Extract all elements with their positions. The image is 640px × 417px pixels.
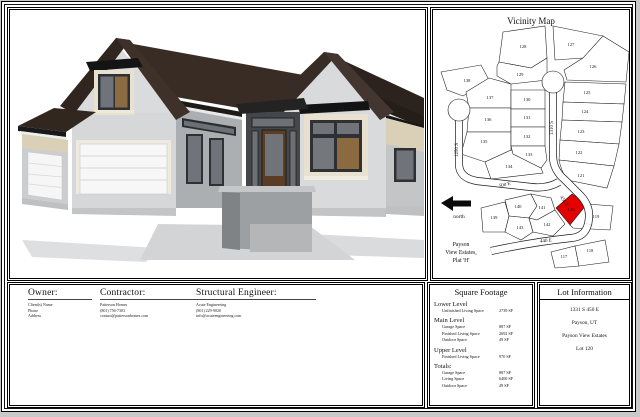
street-label: 1250 S <box>455 143 460 157</box>
sqft-row-label: Finished Living Space <box>442 354 499 360</box>
lot-number-129: 129 <box>517 72 525 77</box>
lot-number-143: 143 <box>517 225 525 230</box>
lot-number-125: 125 <box>584 90 592 95</box>
lot-number-132: 132 <box>524 134 532 139</box>
lot-number-119: 119 <box>593 214 600 219</box>
square-footage-panel: Square Footage Lower LevelUnfinished Liv… <box>427 282 535 408</box>
lot-number-138: 138 <box>464 78 472 83</box>
owner-heading: Owner: <box>28 288 92 300</box>
lot-number-122: 122 <box>576 150 584 155</box>
lot-number-124: 124 <box>582 109 590 114</box>
house-rendering-panel <box>7 7 428 281</box>
lot-number-136: 136 <box>485 117 493 122</box>
svg-text:Payson: Payson <box>453 242 470 248</box>
lot-number-135: 135 <box>481 139 489 144</box>
owner-lines: Client(s) NamePhoneAddress <box>28 302 92 319</box>
sqft-row: Outdoor Space49 SF <box>434 337 530 343</box>
left-gable-window <box>94 70 134 115</box>
lot-number-117: 117 <box>561 254 568 259</box>
sqft-row-value: 49 SF <box>499 383 509 389</box>
lot-number-121: 121 <box>578 173 586 178</box>
lot-number-130: 130 <box>524 97 532 102</box>
sqft-row-label: Outdoor Space <box>442 383 499 389</box>
front-entry <box>236 98 308 192</box>
structural-engineer-column: Structural Engineer: Acute Engineering(8… <box>196 288 316 319</box>
north-arrow-icon <box>441 196 471 211</box>
lot-number-128: 128 <box>520 44 528 49</box>
lot-number-134: 134 <box>506 164 514 169</box>
lot-number-131: 131 <box>524 115 532 120</box>
porch-concrete <box>218 186 316 252</box>
svg-text:Plat 'H': Plat 'H' <box>453 258 470 264</box>
info-line: Address <box>28 313 92 319</box>
owner-column: Owner: Client(s) NamePhoneAddress <box>28 288 92 319</box>
sqft-row: Finished Living Space970 SF <box>434 354 530 360</box>
right-wing <box>384 114 424 216</box>
right-gable-window <box>304 114 368 180</box>
vicinity-map-panel: Vicinity Map <box>430 7 632 281</box>
sqft-row-label: Outdoor Space <box>442 337 499 343</box>
lot-info-line: Lot 120 <box>540 346 629 352</box>
lot-number-142: 142 <box>544 222 552 227</box>
north-indicator: north <box>441 196 471 220</box>
lot-number-118: 118 <box>587 248 594 253</box>
lot-info-line: Payson View Estates <box>540 333 629 339</box>
lot-information-panel: Lot Information 1331 S 450 EPayson, UTPa… <box>537 282 632 408</box>
lot-information-title: Lot Information <box>540 287 629 300</box>
double-garage-door <box>76 140 171 194</box>
sqft-row: Unfinished Living Space2739 SF <box>434 308 530 314</box>
lot-number-139: 139 <box>491 215 499 220</box>
sqft-section-name: Upper Level <box>434 347 530 354</box>
sqft-section-name: Main Level <box>434 317 530 324</box>
lot-information-lines: 1331 S 450 EPayson, UTPayson View Estate… <box>540 307 629 352</box>
north-label: north <box>453 214 465 220</box>
sqft-row: Outdoor Space49 SF <box>434 383 530 389</box>
plan-sheet: Vicinity Map <box>1 1 636 412</box>
lot-number-140: 140 <box>515 204 523 209</box>
sqft-row-label: Unfinished Living Space <box>442 308 499 314</box>
lot-number-126: 126 <box>590 64 598 69</box>
info-line: info@acuteengineering.com <box>196 313 316 319</box>
square-footage-table: Lower LevelUnfinished Living Space2739 S… <box>434 298 530 389</box>
lot-number-133: 133 <box>526 152 534 157</box>
structural-engineer-heading: Structural Engineer: <box>196 288 316 300</box>
project-info-panel: Owner: Client(s) NamePhoneAddress Contra… <box>7 282 425 408</box>
svg-text:View Estates,: View Estates, <box>445 250 477 256</box>
lot-number-141: 141 <box>539 205 547 210</box>
square-footage-title: Square Footage <box>430 287 532 297</box>
sqft-section-name: Lower Level <box>434 301 530 308</box>
lot-number-127: 127 <box>568 42 576 47</box>
lot-number-120: 120 <box>568 207 576 212</box>
lot-number-137: 137 <box>487 95 495 100</box>
cul-de-sac-1310s <box>542 71 564 93</box>
house-rendering <box>10 10 425 278</box>
sqft-section-name: Totals: <box>434 363 530 370</box>
lot-info-line: 1331 S 450 E <box>540 307 629 313</box>
single-garage-door <box>28 152 62 200</box>
vicinity-map: Vicinity Map <box>433 10 629 278</box>
cul-de-sac-1250s <box>448 99 470 121</box>
plat-label: Payson View Estates, Plat 'H' <box>445 242 477 264</box>
street-label: 1310 S <box>550 121 555 135</box>
structural-engineer-lines: Acute Engineering(801) 229-9020info@acut… <box>196 302 316 319</box>
vicinity-map-title: Vicinity Map <box>507 16 555 26</box>
sqft-row-value: 49 SF <box>499 337 509 343</box>
lot-boundaries <box>441 26 629 268</box>
lot-number-123: 123 <box>578 129 586 134</box>
sqft-row-value: 970 SF <box>499 354 511 360</box>
sqft-row-value: 2739 SF <box>499 308 513 314</box>
lot-info-line: Payson, UT <box>540 320 629 326</box>
